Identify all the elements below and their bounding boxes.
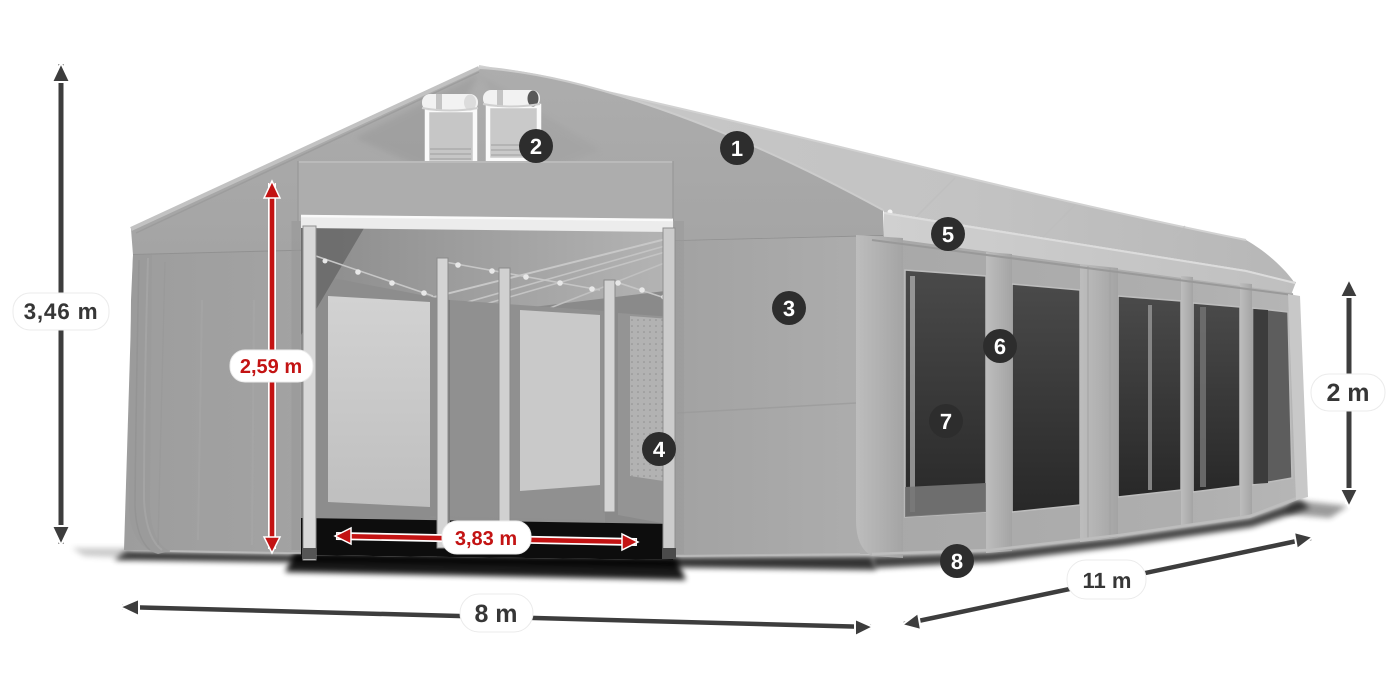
svg-text:2 m: 2 m	[1326, 379, 1369, 407]
svg-text:3,46 m: 3,46 m	[24, 299, 99, 324]
svg-text:3,83 m: 3,83 m	[455, 528, 517, 550]
svg-text:11 m: 11 m	[1083, 568, 1132, 593]
svg-text:8: 8	[951, 549, 963, 574]
svg-text:1: 1	[731, 136, 743, 161]
svg-text:3: 3	[783, 296, 795, 321]
svg-text:4: 4	[653, 437, 666, 462]
svg-text:8 m: 8 m	[474, 600, 517, 628]
svg-text:2,59 m: 2,59 m	[240, 356, 302, 378]
svg-text:6: 6	[994, 334, 1006, 359]
svg-text:2: 2	[530, 134, 542, 159]
svg-text:7: 7	[940, 409, 952, 434]
svg-text:5: 5	[942, 222, 954, 247]
